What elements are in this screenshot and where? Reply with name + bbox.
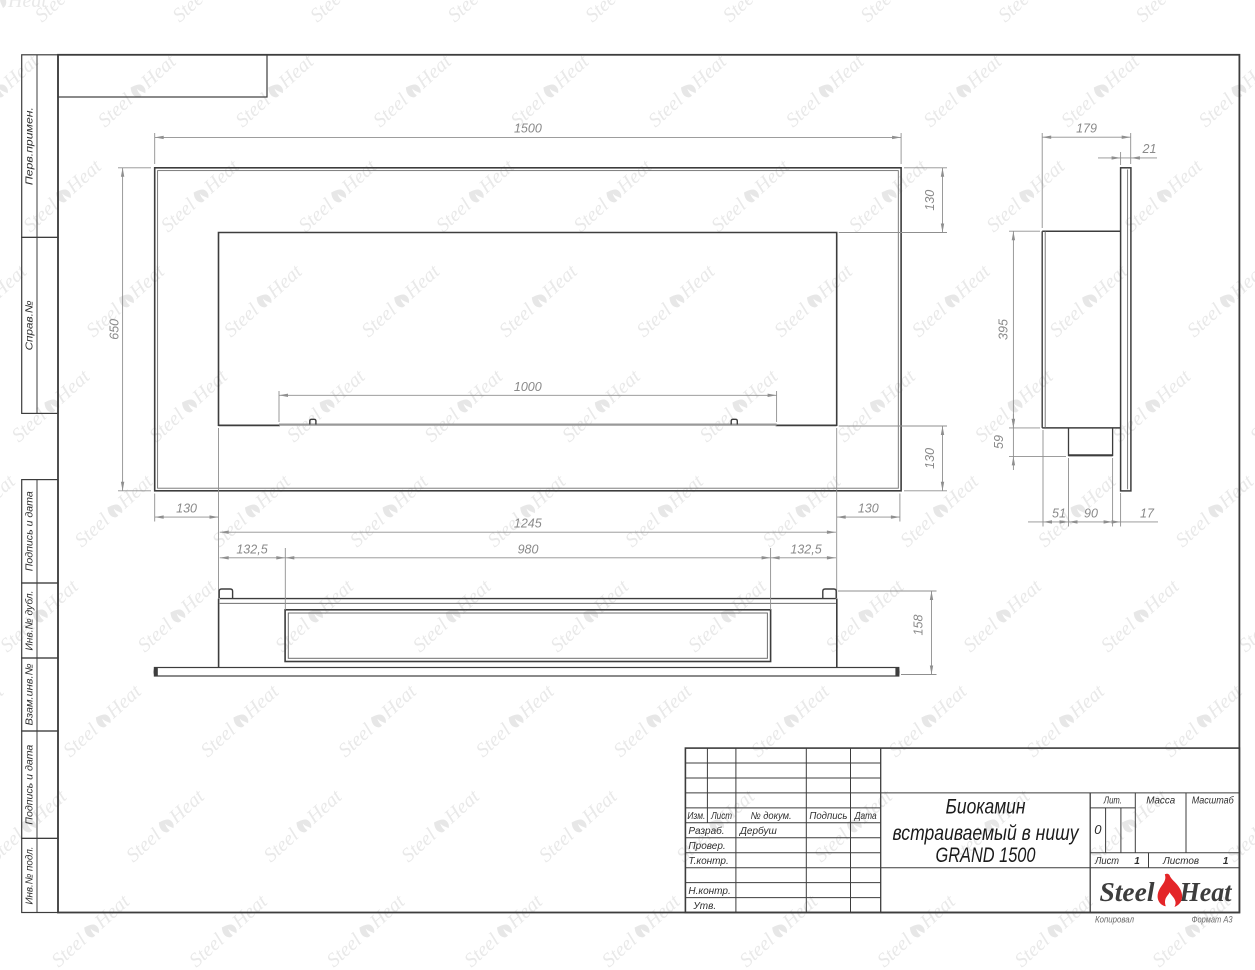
svg-text:№ докум.: № докум. [751, 811, 792, 822]
svg-text:Лист: Лист [1094, 856, 1119, 867]
svg-text:Провер.: Провер. [688, 841, 725, 852]
svg-text:Heat: Heat [1179, 877, 1233, 907]
svg-text:Steel: Steel [1100, 877, 1155, 907]
svg-text:51: 51 [1052, 506, 1066, 520]
svg-text:1245: 1245 [514, 517, 542, 531]
svg-text:Формат А3: Формат А3 [1192, 915, 1234, 926]
svg-text:Справ.№: Справ.№ [24, 300, 36, 350]
svg-text:Утв.: Утв. [692, 901, 716, 912]
svg-text:Дата: Дата [854, 811, 877, 822]
svg-text:0: 0 [1094, 822, 1102, 837]
svg-text:Разраб.: Разраб. [688, 825, 724, 837]
svg-text:Подпись: Подпись [809, 811, 847, 822]
svg-text:Изм.: Изм. [687, 811, 705, 822]
svg-text:1: 1 [1134, 856, 1140, 867]
svg-text:130: 130 [923, 190, 937, 211]
svg-text:17: 17 [1140, 506, 1155, 520]
svg-text:130: 130 [858, 502, 879, 516]
svg-text:132,5: 132,5 [236, 542, 267, 556]
svg-text:650: 650 [108, 319, 122, 340]
svg-text:Дербуш: Дербуш [739, 825, 778, 837]
svg-text:21: 21 [1142, 142, 1157, 156]
svg-text:Перв.примен.: Перв.примен. [24, 107, 36, 185]
svg-text:980: 980 [518, 542, 539, 556]
svg-text:395: 395 [997, 319, 1011, 340]
svg-text:158: 158 [912, 615, 926, 636]
svg-text:Т.контр.: Т.контр. [688, 856, 728, 867]
svg-text:1500: 1500 [514, 122, 542, 136]
svg-text:Инв.№ дубл.: Инв.№ дубл. [24, 591, 36, 651]
svg-text:Инв.№ подл.: Инв.№ подл. [24, 847, 36, 905]
svg-text:179: 179 [1076, 122, 1097, 136]
svg-text:Подпись и дата: Подпись и дата [24, 491, 36, 571]
svg-text:Масштаб: Масштаб [1192, 795, 1234, 807]
svg-text:130: 130 [923, 448, 937, 469]
svg-text:59: 59 [992, 435, 1006, 449]
svg-text:132,5: 132,5 [790, 542, 821, 556]
svg-text:Лит.: Лит. [1103, 796, 1122, 807]
svg-text:Лист: Лист [710, 811, 732, 822]
svg-text:1: 1 [1223, 856, 1229, 867]
svg-text:Н.контр.: Н.контр. [688, 886, 730, 897]
svg-text:1000: 1000 [514, 380, 542, 394]
svg-text:встраиваемый в нишу: встраиваемый в нишу [893, 822, 1080, 845]
svg-text:Биокамин: Биокамин [946, 796, 1026, 819]
svg-text:Листов: Листов [1162, 856, 1199, 867]
svg-text:GRAND 1500: GRAND 1500 [936, 844, 1036, 867]
svg-text:Копировал: Копировал [1095, 915, 1135, 926]
svg-text:130: 130 [176, 502, 197, 516]
svg-text:Масса: Масса [1146, 796, 1175, 807]
svg-text:Взам.инв.№: Взам.инв.№ [24, 664, 36, 726]
svg-text:Подпись и дата: Подпись и дата [24, 745, 36, 825]
svg-text:90: 90 [1084, 506, 1098, 520]
